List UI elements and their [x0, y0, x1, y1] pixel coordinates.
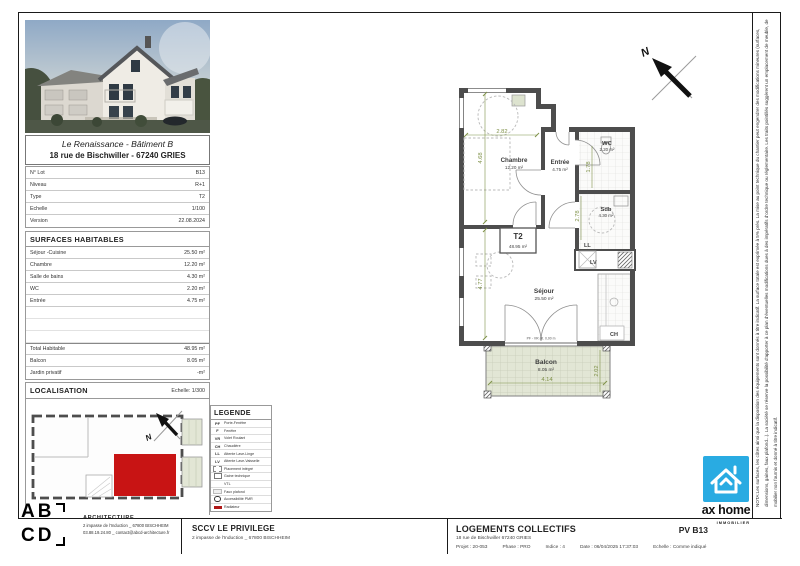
room-sejour-area: 25.50 m² — [535, 296, 554, 302]
empty-row — [26, 319, 209, 331]
building-rendering-image — [25, 20, 210, 133]
row-label: N° Lot — [30, 170, 45, 176]
row-value: R+1 — [195, 182, 205, 188]
project-header: Le Renaissance - Bâtiment B 18 rue de Bi… — [25, 135, 210, 165]
legend-code: PF — [215, 421, 220, 426]
room-chambre-area: 12.20 m² — [505, 165, 524, 170]
dim-balcon-h: 2.02 — [594, 365, 600, 376]
pmr-circle-icon — [214, 496, 221, 503]
row-value: 2.20 m² — [187, 286, 205, 292]
building-photo — [25, 20, 210, 133]
empty-row — [26, 331, 209, 343]
localisation-title: LOCALISATION — [30, 386, 88, 395]
table-row: WC2.20 m² — [26, 283, 209, 295]
client-address: 2 impasse de l'Induction _ 67800 BISCHHE… — [192, 536, 437, 541]
ch-label: CH — [610, 332, 618, 338]
table-row: Version22.08.2024 — [26, 215, 209, 227]
row-label: Balcon — [30, 358, 46, 364]
legend-item: VTL — [211, 481, 271, 489]
legend-label: Gaine technique — [224, 474, 250, 478]
brand-subtitle: IMMOBILIER — [700, 520, 752, 525]
localisation-map: N — [26, 399, 209, 515]
legend-label: VTL — [224, 482, 231, 486]
dashed-box-icon — [213, 466, 222, 472]
row-label: Entrée — [30, 298, 46, 304]
radiator-icon — [214, 506, 222, 509]
legend-label: Attente Lave-Linge — [224, 452, 254, 456]
row-value: 8.05 m² — [187, 358, 205, 364]
logo-letters-top: AB — [21, 501, 54, 523]
brand-name: ax home — [700, 503, 752, 517]
room-entree-label: Entrée — [551, 160, 570, 166]
floor-plan-drawing: T2 48.95 m² Chambre 12.20 m² Entrée 4.75… — [440, 40, 760, 400]
legend-item: Gaine technique — [211, 473, 271, 481]
table-row-total: Jardin privatif-m² — [26, 367, 209, 379]
surfaces-title: SURFACES HABITABLES — [26, 232, 209, 247]
architect-name: ARCHITECTURE — [83, 515, 199, 521]
row-value: -m² — [197, 370, 205, 376]
room-balcon-label: Balcon — [535, 359, 557, 366]
row-label: Niveau — [30, 182, 47, 188]
localisation-scale: Echelle: 1/300 — [171, 388, 205, 394]
legend-label: Chaudière — [224, 444, 241, 448]
architect-logo: AB CD ARCHITECTURE 2 impasse de l'Induct… — [21, 501, 65, 549]
row-label: Chambre — [30, 262, 52, 268]
client-name: SCCV LE PRIVILEGE — [192, 524, 437, 533]
legend-item: LLAttente Lave-Linge — [211, 450, 271, 458]
row-value: B13 — [196, 170, 205, 176]
legend-panel: LEGENDE PFPorte-Fenêtre FFenêtre VRVolet… — [210, 405, 272, 512]
legend-code: VR — [215, 436, 220, 441]
meta-phase: Phase : PRO — [502, 545, 530, 550]
legend-label: Placement intégré — [224, 467, 253, 471]
table-row: NiveauR+1 — [26, 179, 209, 191]
project-address: 18 rue de Bischwiller 67240 GRIES — [456, 536, 774, 541]
ll-label: LL — [584, 243, 591, 249]
residence-title: Le Renaissance - Bâtiment B — [26, 139, 209, 149]
plan-sheet: Le Renaissance - Bâtiment B 18 rue de Bi… — [0, 0, 800, 566]
localisation-header: LOCALISATION Echelle: 1/300 — [26, 383, 209, 399]
legend-item: FFenêtre — [211, 428, 271, 436]
legend-code: CH — [215, 444, 221, 449]
legend-label: Attente Lave-Vaisselle — [224, 459, 260, 463]
legend-item: CHChaudière — [211, 443, 271, 451]
row-value: 1/100 — [192, 206, 205, 212]
nota-text: NOTA:Les surfaces, les côtes ainsi que l… — [753, 12, 782, 510]
row-label: Echelle — [30, 206, 47, 212]
meta-date: Date : 06/04/2025 17:37:03 — [580, 545, 638, 550]
row-value: 4.75 m² — [187, 298, 205, 304]
axhome-house-icon — [703, 456, 749, 502]
unit-area-label: 48.95 m² — [509, 244, 528, 249]
surfaces-table: SURFACES HABITABLES Séjour -Cuisine25.50… — [25, 231, 210, 380]
legend-item: PFPorte-Fenêtre — [211, 420, 271, 428]
legend-label: Faux plafond — [224, 490, 245, 494]
legend-code: LV — [215, 459, 220, 464]
legend-item: Radiateur — [211, 504, 271, 512]
lot-info-table: N° LotB13 NiveauR+1 TypeT2 Echelle1/100 … — [25, 166, 210, 228]
table-row: TypeT2 — [26, 191, 209, 203]
lv-label: LV — [590, 260, 597, 266]
table-row: Chambre12.20 m² — [26, 259, 209, 271]
nota-strip: NOTA:Les surfaces, les côtes ainsi que l… — [752, 12, 782, 518]
table-row: Séjour -Cuisine25.50 m² — [26, 247, 209, 259]
row-value: 22.08.2024 — [178, 218, 205, 224]
dim-balcon-w: 4.14 — [541, 377, 553, 383]
room-entree-area: 4.75 m² — [552, 167, 568, 172]
bracket-icon — [56, 537, 65, 546]
table-row: N° LotB13 — [26, 167, 209, 179]
row-value: 25.50 m² — [184, 250, 205, 256]
legend-code: LL — [215, 451, 220, 456]
logo-letters-bottom: CD — [21, 525, 54, 547]
row-label: Version — [30, 218, 48, 224]
row-label: Jardin privatif — [30, 370, 62, 376]
legend-item: VRVolet Roulant — [211, 435, 271, 443]
highlighted-unit — [114, 454, 176, 496]
row-value: 4.30 m² — [187, 274, 205, 280]
row-label: Salle de bains — [30, 274, 63, 280]
row-value: 12.20 m² — [184, 262, 205, 268]
row-label: Séjour -Cuisine — [30, 250, 66, 256]
row-label: Total Habitable — [30, 346, 65, 352]
bracket-icon — [56, 503, 65, 512]
brand-block: ax home IMMOBILIER — [700, 456, 752, 525]
legend-title: LEGENDE — [211, 406, 271, 420]
legend-item: Faux plafond — [211, 488, 271, 496]
client-block: SCCV LE PRIVILEGE 2 impasse de l'Inducti… — [182, 519, 448, 554]
legend-label: Radiateur — [224, 505, 240, 509]
north-arrow-icon: N — [639, 45, 696, 100]
dim-sejour: 4.77 — [478, 278, 484, 289]
legend-label: Porte-Fenêtre — [224, 421, 246, 425]
legend-label: Accessibilité PMR — [224, 497, 253, 501]
table-row-total: Total Habitable48.95 m² — [26, 343, 209, 355]
legend-item: Placement intégré — [211, 466, 271, 474]
dim-sdb: 2.78 — [575, 210, 581, 221]
windows — [457, 86, 577, 343]
legend-label: Fenêtre — [224, 429, 236, 433]
project-meta: Projet : 20-053 Phase : PRO Indice : 4 D… — [456, 545, 774, 550]
row-label: Type — [30, 194, 41, 200]
dim-entree: 1.78 — [586, 161, 592, 172]
table-row: Echelle1/100 — [26, 203, 209, 215]
unit-type-label: T2 — [513, 232, 523, 241]
legend-item: LVAttente Lave-Vaisselle — [211, 458, 271, 466]
sheet-reference: PV B13 — [679, 525, 708, 535]
meta-echelle: Echelle : Comme indiqué — [653, 545, 706, 550]
room-wc-area: 2.20 m² — [600, 147, 615, 152]
room-sdb-area: 4.30 m² — [599, 213, 614, 218]
row-value: 48.95 m² — [184, 346, 205, 352]
legend-code: F — [216, 428, 218, 433]
empty-row — [26, 307, 209, 319]
table-row: Salle de bains4.30 m² — [26, 271, 209, 283]
table-row: Entrée4.75 m² — [26, 295, 209, 307]
door-note: PF - VR alt. 0,00 m — [527, 337, 556, 341]
table-row-total: Balcon8.05 m² — [26, 355, 209, 367]
row-label: WC — [30, 286, 39, 292]
legend-item: Accessibilité PMR — [211, 496, 271, 504]
project-title: LOGEMENTS COLLECTIFS — [456, 524, 576, 534]
dim-chambre: 4.68 — [478, 152, 484, 163]
meta-projet: Projet : 20-053 — [456, 545, 487, 550]
legend-label: Volet Roulant — [224, 436, 245, 440]
ceiling-box-icon — [213, 489, 222, 495]
meta-indice: Indice : 4 — [545, 545, 564, 550]
room-balcon-area: 8.05 m² — [538, 367, 555, 373]
room-chambre-label: Chambre — [501, 157, 528, 164]
residence-address: 18 rue de Bischwiller - 67240 GRIES — [26, 151, 209, 160]
row-value: T2 — [199, 194, 205, 200]
localisation-panel: LOCALISATION Echelle: 1/300 — [25, 382, 210, 515]
north-label: N — [639, 45, 652, 60]
room-sejour-label: Séjour — [534, 288, 555, 295]
floor-plan: T2 48.95 m² Chambre 12.20 m² Entrée 4.75… — [440, 40, 760, 400]
dim-top: 2.82 — [496, 129, 507, 135]
architect-contact: 03.88.19.24.80 _ contact@abcd-architectu… — [83, 530, 199, 537]
duct-box-icon — [214, 473, 222, 479]
